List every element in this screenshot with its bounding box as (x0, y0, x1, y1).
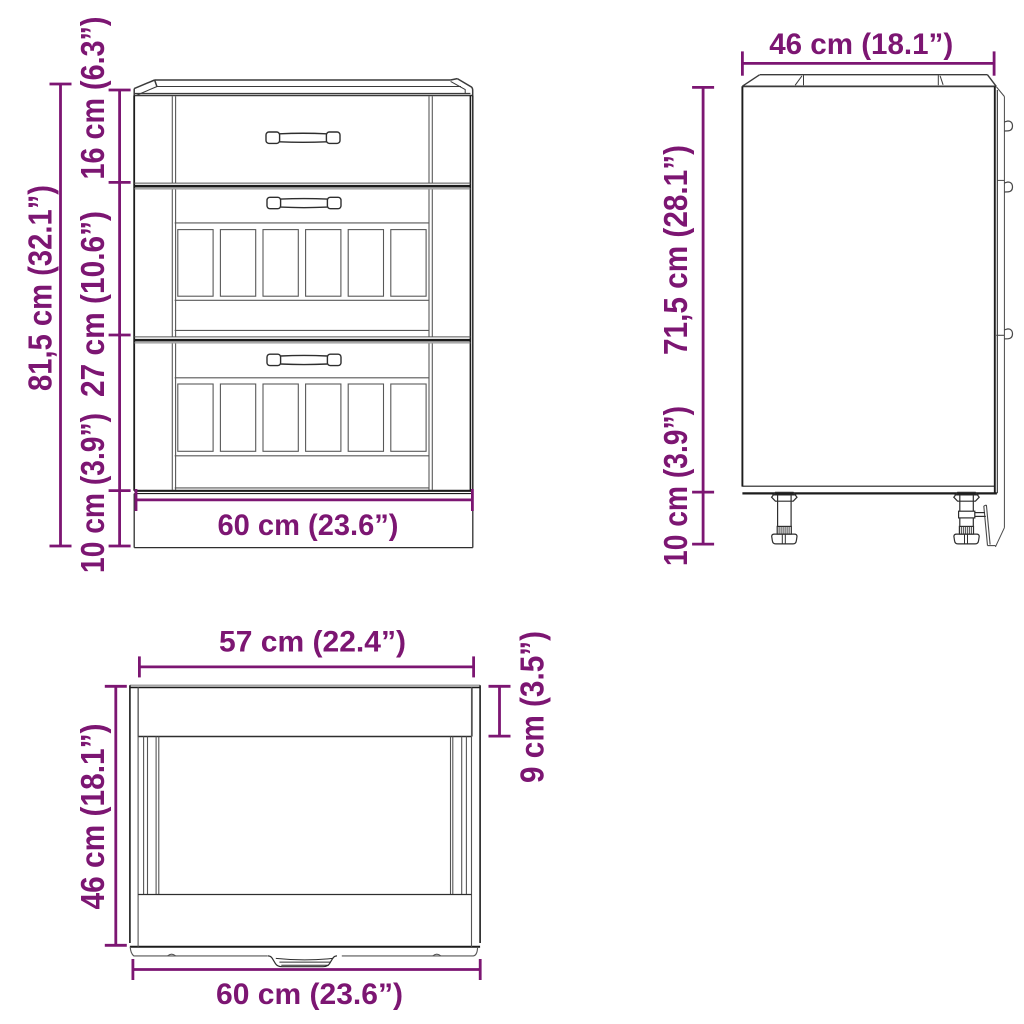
svg-text:60 cm (23.6”): 60 cm (23.6”) (216, 978, 403, 1011)
svg-text:57 cm (22.4”): 57 cm (22.4”) (219, 626, 406, 659)
svg-text:46 cm (18.1”): 46 cm (18.1”) (769, 28, 953, 61)
svg-text:46 cm (18.1”): 46 cm (18.1”) (74, 724, 111, 910)
svg-text:10 cm (3.9”): 10 cm (3.9”) (74, 413, 111, 573)
svg-text:9 cm (3.5”): 9 cm (3.5”) (514, 631, 551, 783)
svg-text:81,5 cm (32.1”): 81,5 cm (32.1”) (22, 185, 59, 391)
svg-text:10 cm (3.9”): 10 cm (3.9”) (657, 406, 694, 566)
svg-text:16 cm (6.3”): 16 cm (6.3”) (74, 17, 111, 180)
svg-text:60 cm (23.6”): 60 cm (23.6”) (218, 509, 399, 542)
svg-text:71,5 cm (28.1”): 71,5 cm (28.1”) (657, 145, 694, 355)
svg-text:27 cm (10.6”): 27 cm (10.6”) (74, 211, 111, 397)
